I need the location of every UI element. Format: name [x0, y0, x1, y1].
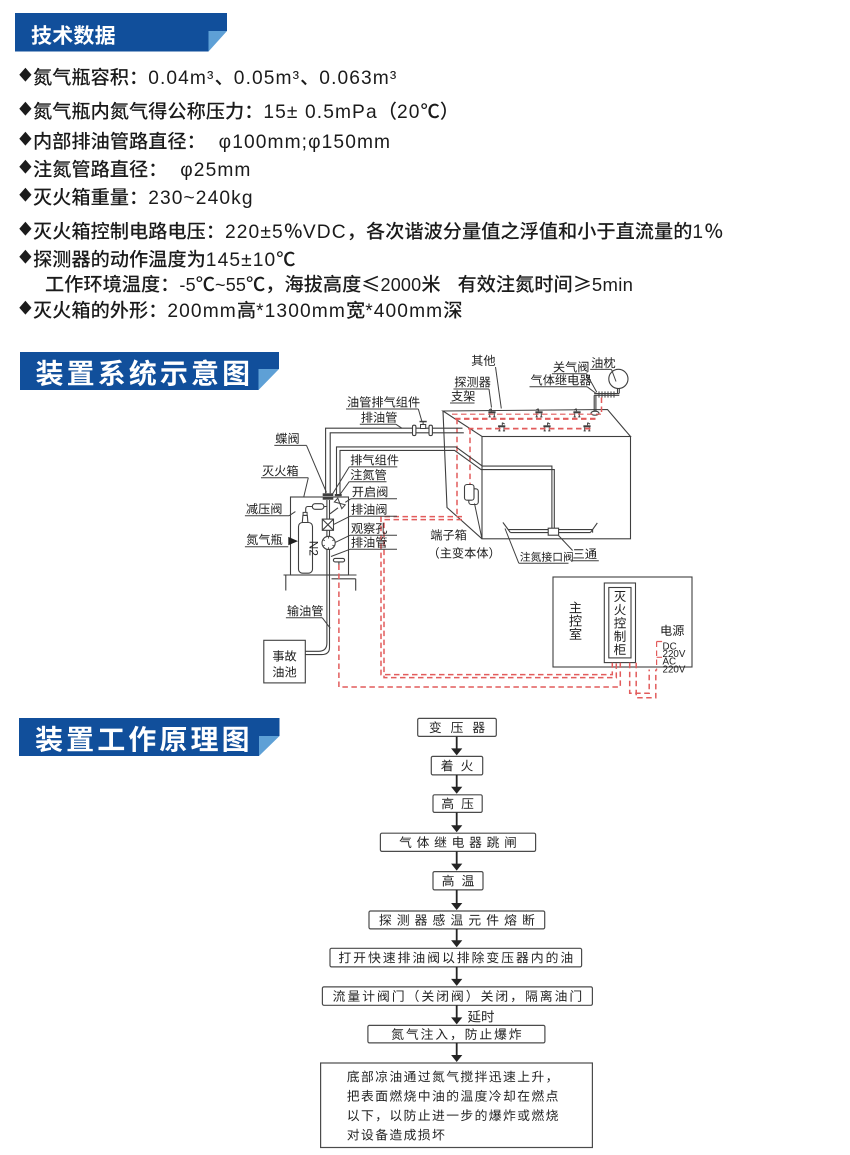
svg-text:20: 20: [397, 102, 421, 123]
svg-text:1: 1: [692, 222, 704, 243]
svg-text:φ25mm: φ25mm: [167, 160, 251, 181]
svg-text:*400mm: *400mm: [365, 301, 443, 322]
svg-text:φ100mm;φ150mm: φ100mm;φ150mm: [206, 132, 391, 153]
svg-text:VDC: VDC: [303, 222, 347, 243]
svg-text:2000: 2000: [381, 275, 422, 295]
svg-text:5min: 5min: [592, 274, 633, 295]
svg-text:0.04m³: 0.04m³: [148, 68, 214, 89]
svg-text:~55: ~55: [215, 275, 246, 295]
svg-text:230~240kg: 230~240kg: [148, 188, 253, 209]
svg-text:N2: N2: [307, 541, 321, 556]
svg-text:*1300mm: *1300mm: [256, 301, 346, 322]
svg-text:-5: -5: [179, 275, 195, 295]
svg-text:0.05m³: 0.05m³: [234, 68, 300, 89]
svg-text:200mm: 200mm: [167, 301, 236, 322]
svg-text:15± 0.5mPa: 15± 0.5mPa: [263, 102, 377, 123]
svg-text:220±5: 220±5: [225, 222, 284, 243]
svg-text:145±10: 145±10: [206, 250, 276, 271]
svg-text:220V: 220V: [663, 664, 686, 675]
svg-text:0.063m³: 0.063m³: [319, 68, 397, 89]
